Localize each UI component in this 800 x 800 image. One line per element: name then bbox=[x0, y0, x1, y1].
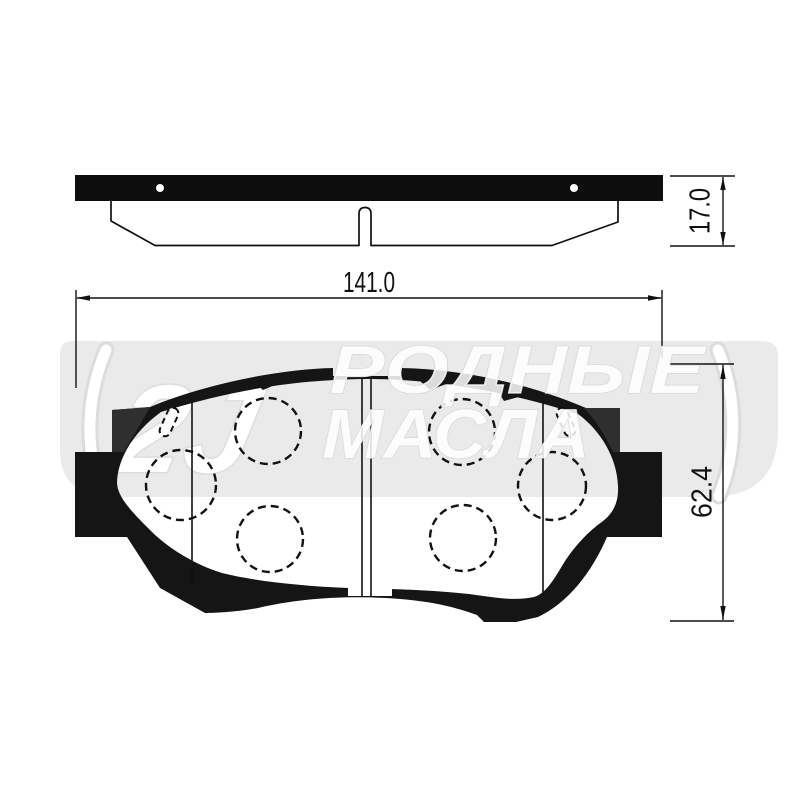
rivet-hole-left bbox=[156, 184, 164, 192]
drawing-canvas: 2J 17.0 141.0 bbox=[0, 0, 800, 800]
height-value: 62.4 bbox=[687, 466, 719, 518]
rivet-hole-right bbox=[570, 184, 578, 192]
width-value: 141.0 bbox=[343, 267, 395, 299]
thickness-value: 17.0 bbox=[685, 188, 717, 234]
brake-pad-drawing-page: 2J 17.0 141.0 bbox=[0, 0, 800, 800]
watermark-line2: МАСЛА bbox=[322, 395, 590, 473]
